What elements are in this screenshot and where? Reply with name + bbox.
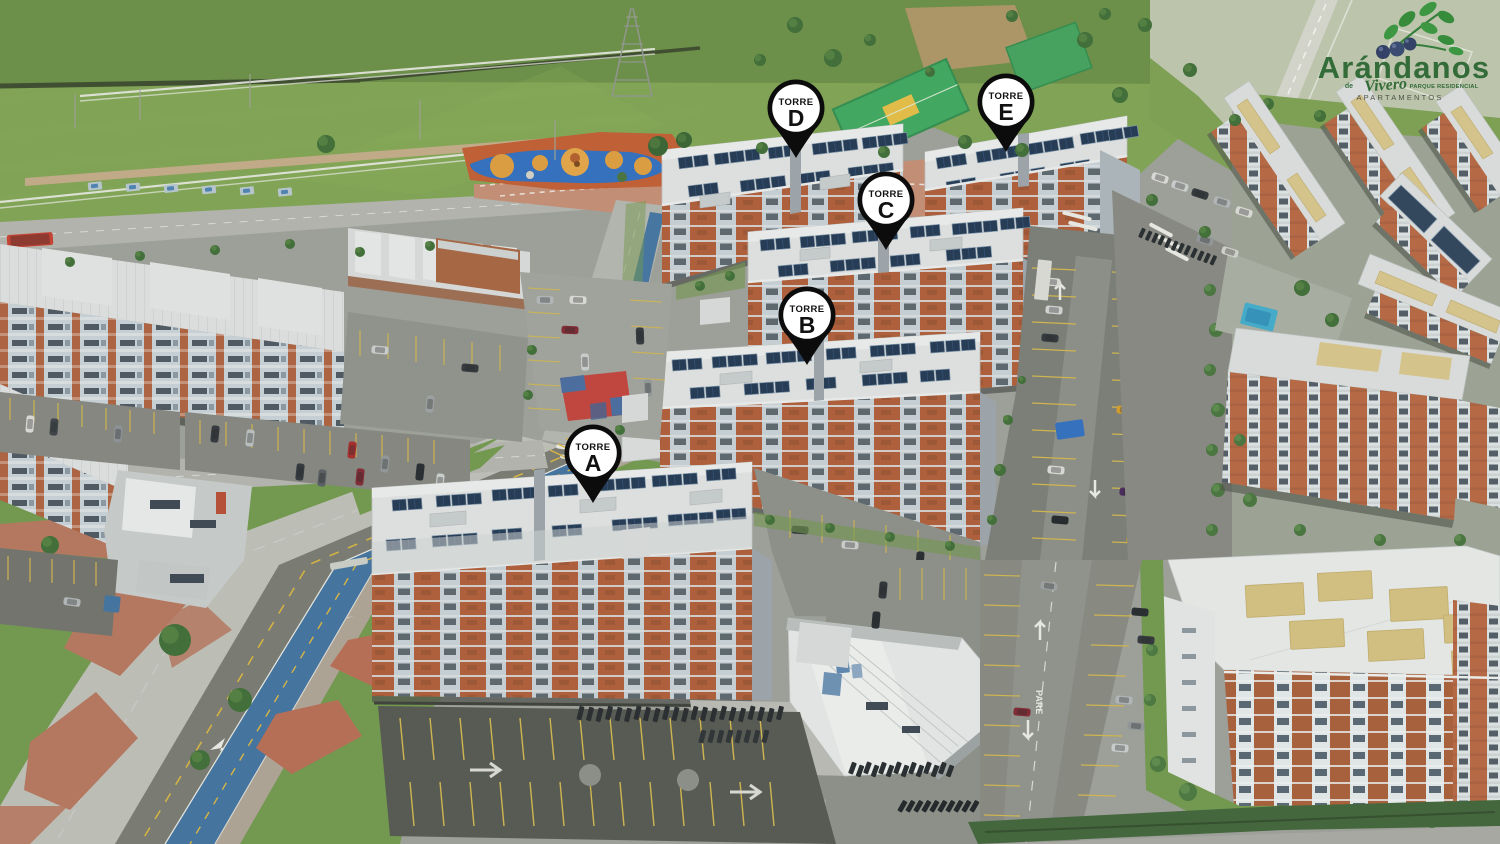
svg-text:de: de bbox=[1345, 83, 1353, 90]
svg-text:APARTAMENTOS: APARTAMENTOS bbox=[1356, 93, 1443, 102]
svg-text:B: B bbox=[799, 312, 816, 338]
svg-text:A: A bbox=[585, 450, 602, 476]
svg-text:PARQUE RESIDENCIAL: PARQUE RESIDENCIAL bbox=[1410, 84, 1479, 90]
svg-text:C: C bbox=[878, 197, 895, 223]
svg-text:D: D bbox=[788, 105, 805, 131]
svg-text:E: E bbox=[998, 99, 1013, 125]
